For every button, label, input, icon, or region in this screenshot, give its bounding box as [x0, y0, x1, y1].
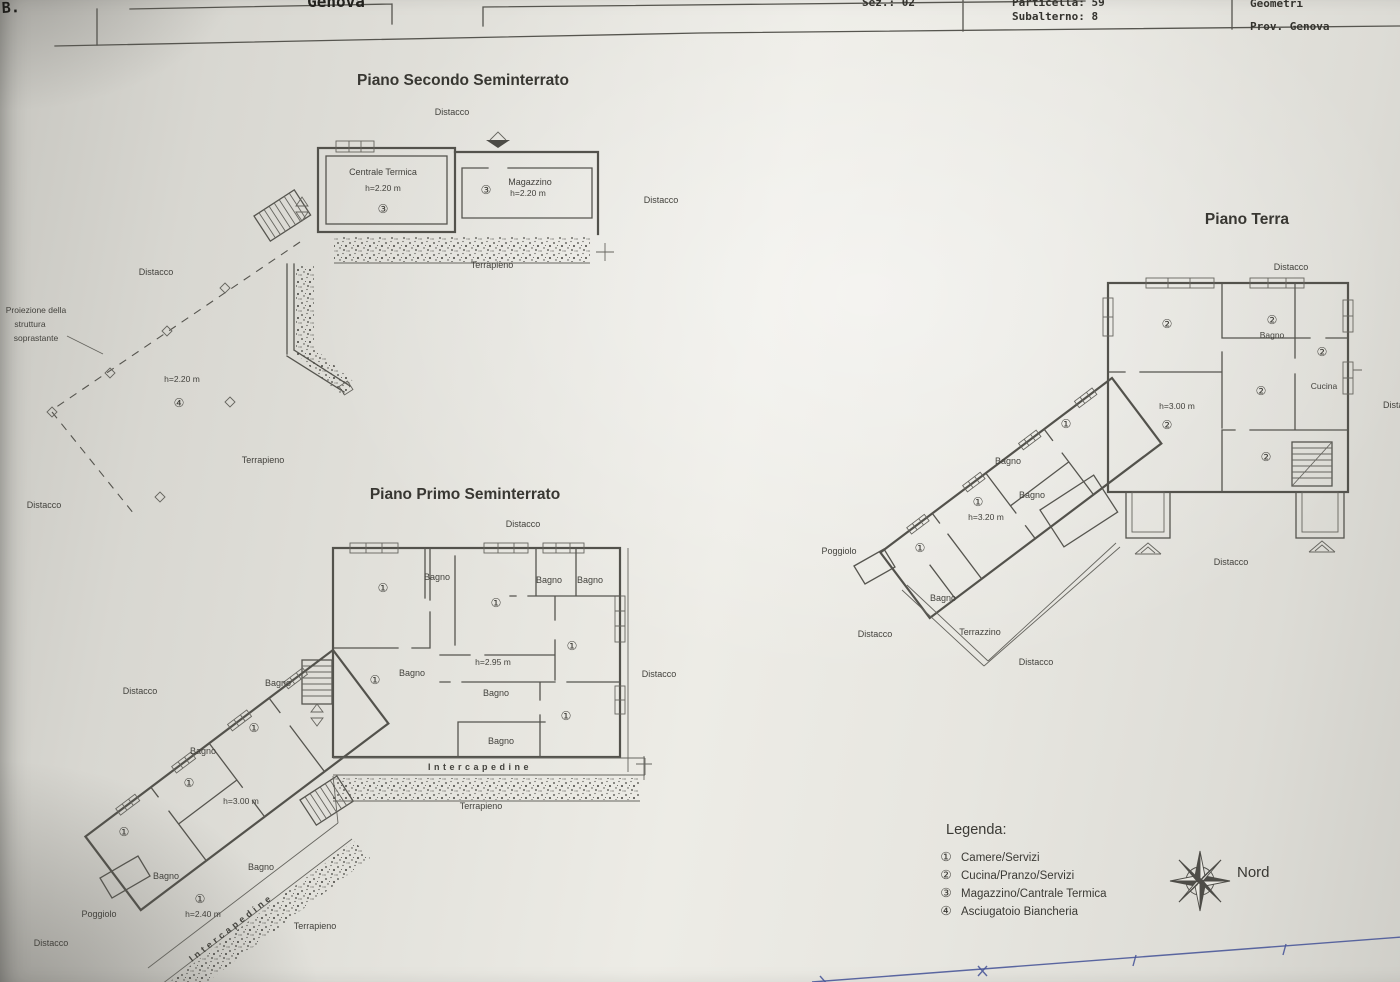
legend-title: Legenda:	[946, 822, 1006, 838]
room-number: ②	[1162, 418, 1173, 432]
planT-walls	[854, 278, 1362, 666]
label-distacco: Distacco	[858, 629, 893, 639]
room-label: Bagno	[483, 688, 509, 698]
room-height: h=2.20 m	[365, 183, 401, 193]
terrapieno-hatch	[334, 237, 590, 262]
label-distacco: Distacco	[123, 686, 158, 696]
room-label: Bagno	[995, 456, 1021, 466]
header-particella: Particella: 59	[1012, 0, 1105, 9]
header-table: Genova Sez.: 02 Particella: 59 Subaltern…	[1, 0, 1400, 46]
room-number: ①	[119, 825, 130, 839]
label-distacco: Distacco	[506, 519, 541, 529]
terrazzino-lines	[902, 543, 1120, 666]
legend-item-number: ③	[940, 885, 951, 900]
label-distacco: Distacco	[1214, 557, 1249, 567]
plan2-title: Piano Secondo Seminterrato	[357, 72, 569, 89]
legend-item-label: Asciugatoio Biancheria	[961, 906, 1079, 918]
label-terrapieno: Terrapieno	[294, 921, 337, 931]
room-height: h=3.00 m	[1159, 401, 1195, 411]
plan1-title: Piano Primo Seminterrato	[370, 486, 560, 503]
room-number: ①	[370, 673, 381, 687]
room-label: Bagno	[577, 575, 603, 585]
label-terrapieno: Terrapieno	[460, 801, 503, 811]
compass-rose-icon	[1170, 851, 1230, 911]
label-poggiolo: Poggiolo	[81, 909, 116, 919]
plan-primo-seminterrato: Piano Primo Seminterrato Distacco	[34, 486, 677, 982]
terrapieno-hatch	[296, 266, 354, 396]
label-terrapieno: Terrapieno	[242, 455, 285, 465]
legend-item-label: Cucina/Pranzo/Servizi	[961, 870, 1074, 882]
planT-title: Piano Terra	[1205, 211, 1290, 228]
poggiolo-outline	[854, 549, 895, 584]
room-height: h=2.40 m	[185, 909, 221, 919]
room-label: Bagno	[399, 668, 425, 678]
label-distacco: Distacco	[139, 267, 174, 277]
label-distacco: Distacco	[642, 669, 677, 679]
room-number: ①	[973, 495, 984, 509]
room-label: Magazzino	[508, 177, 552, 187]
room-height: h=3.20 m	[968, 512, 1004, 522]
room-label: Bagno	[1260, 330, 1285, 340]
room-number: ①	[249, 721, 260, 735]
room-label: Bagno	[190, 746, 216, 756]
legend-item-number: ④	[940, 903, 951, 918]
room-label: Bagno	[153, 871, 179, 881]
label-distacco: Distacco	[1274, 262, 1309, 272]
label-distacco: Distacco	[1383, 400, 1400, 410]
floor-plan-drawing: Genova Sez.: 02 Particella: 59 Subaltern…	[0, 0, 1400, 982]
label-distacco: Distacco	[435, 107, 470, 117]
room-height: h=2.20 m	[510, 188, 546, 198]
label-proiezione: Proiezione della	[6, 305, 67, 315]
room-number: ①	[195, 892, 206, 906]
terrapieno-hatch	[333, 778, 639, 800]
room-number: ①	[1061, 417, 1072, 431]
leader-line	[67, 336, 103, 354]
room-number: ②	[1162, 317, 1173, 331]
corner-mark: B.	[1, 0, 20, 17]
room-number: ②	[1256, 384, 1267, 398]
room-label: Bagno	[930, 593, 956, 603]
room-number: ②	[1261, 450, 1272, 464]
room-number: ②	[1317, 345, 1328, 359]
poggiolo-outline	[100, 856, 150, 898]
room-label: Bagno	[1019, 490, 1045, 500]
room-height: h=2.95 m	[475, 657, 511, 667]
header-prov: Prov. Genova	[1250, 20, 1329, 33]
label-intercapedine: Intercapedine	[428, 762, 532, 772]
label-distacco: Distacco	[27, 500, 62, 510]
entry-arrow-icon	[486, 132, 510, 148]
room-label: Bagno	[488, 736, 514, 746]
label-proiezione: struttura	[14, 319, 45, 329]
label-poggiolo: Poggiolo	[821, 546, 856, 556]
label-distacco: Distacco	[644, 195, 679, 205]
room-label: Bagno	[248, 862, 274, 872]
room-label: Centrale Termica	[349, 167, 417, 177]
plan1-walls	[83, 543, 652, 982]
plan-secondo-seminterrato: Piano Secondo Seminterrato Distacco	[6, 72, 679, 514]
room-number: ①	[491, 596, 502, 610]
header-subalterno: Subalterno: 8	[1012, 10, 1098, 23]
room-number: ④	[174, 396, 185, 410]
room-number: ③	[378, 202, 389, 216]
label-terrazzino: Terrazzino	[959, 627, 1001, 637]
legend-item-label: Magazzino/Cantrale Termica	[961, 888, 1107, 900]
label-terrapieno: Terrapieno	[471, 260, 514, 270]
header-sez: Sez.: 02	[862, 0, 915, 9]
entry-canopy-icon	[1135, 541, 1335, 554]
room-label: Bagno	[536, 575, 562, 585]
room-height: h=2.20 m	[164, 374, 200, 384]
header-comune: Genova	[307, 0, 365, 11]
legend-item-number: ①	[940, 849, 951, 864]
label-distacco: Distacco	[34, 938, 69, 948]
compass-label: Nord	[1237, 864, 1270, 881]
pillar-diamonds	[47, 283, 235, 502]
legend: Legenda: ① Camere/Servizi ② Cucina/Pranz…	[940, 822, 1107, 918]
room-number: ①	[567, 639, 578, 653]
room-number: ①	[378, 581, 389, 595]
room-number: ③	[481, 183, 492, 197]
internal-stair	[1292, 442, 1332, 486]
room-label: Cucina	[1311, 381, 1338, 391]
label-distacco: Distacco	[1019, 657, 1054, 667]
room-height: h=3.00 m	[223, 796, 259, 806]
legend-item-number: ②	[940, 867, 951, 882]
pen-line	[812, 937, 1400, 982]
room-number: ①	[915, 541, 926, 555]
room-number: ①	[561, 709, 572, 723]
room-number: ②	[1267, 313, 1278, 327]
room-label: Bagno	[424, 572, 450, 582]
room-number: ①	[184, 776, 195, 790]
room-label: Bagno	[265, 678, 291, 688]
plan-terra: Piano Terra Distacco	[821, 211, 1400, 667]
scanned-floor-plan-sheet: Genova Sez.: 02 Particella: 59 Subaltern…	[0, 0, 1400, 982]
window-symbols	[1103, 278, 1362, 394]
legend-item-label: Camere/Servizi	[961, 852, 1040, 864]
header-geometri: Geometri	[1250, 0, 1303, 10]
label-proiezione: soprastante	[14, 333, 59, 343]
